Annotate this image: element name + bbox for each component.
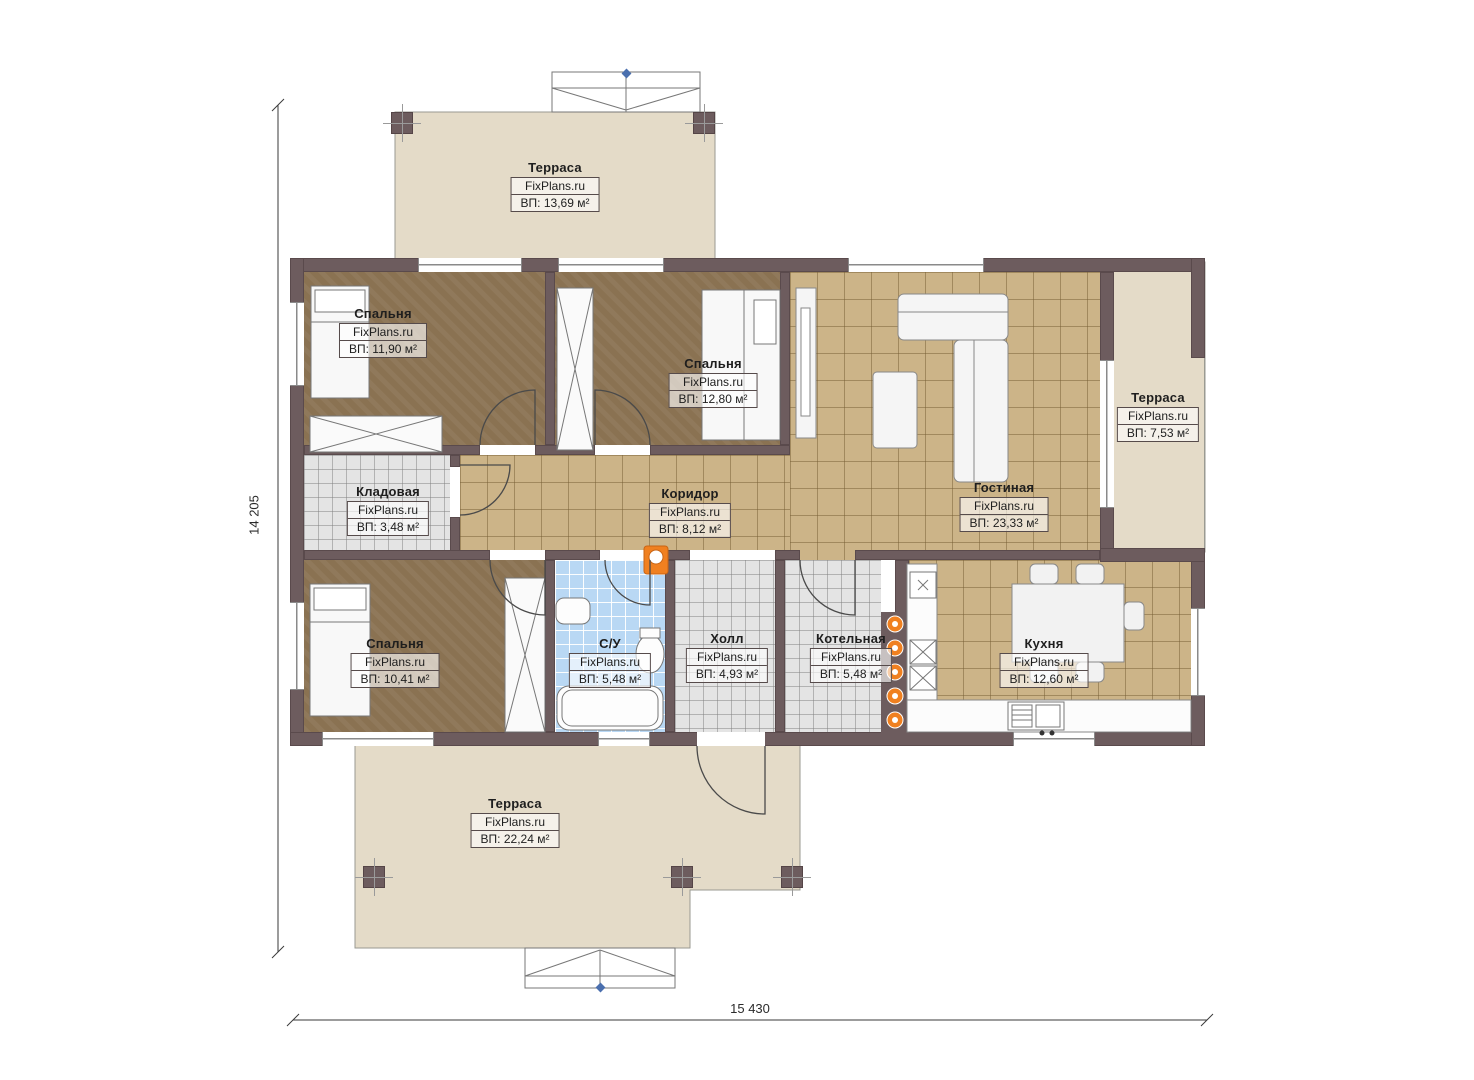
room-name: Спальня xyxy=(351,636,440,651)
brand-label: FixPlans.ru xyxy=(340,324,426,341)
room-label-bathroom: С/У FixPlans.ru ВП: 5,48 м² xyxy=(569,636,651,688)
brand-label: FixPlans.ru xyxy=(961,498,1048,515)
room-area: ВП: 10,41 м² xyxy=(352,671,439,687)
bathtub xyxy=(557,686,663,730)
stairs-bottom xyxy=(525,948,675,992)
room-area: ВП: 11,90 м² xyxy=(340,341,426,357)
kitchen-sink xyxy=(1008,702,1064,736)
room-name: Кухня xyxy=(1000,636,1089,651)
room-area: ВП: 3,48 м² xyxy=(348,519,428,535)
room-label-storage: Кладовая FixPlans.ru ВП: 3,48 м² xyxy=(347,484,429,536)
door-arc-boiler xyxy=(800,560,855,615)
room-label-boiler-room: Котельная FixPlans.ru ВП: 5,48 м² xyxy=(810,631,892,683)
room-area: ВП: 12,60 м² xyxy=(1001,671,1088,687)
room-name: Холл xyxy=(686,631,768,646)
room-name: Терраса xyxy=(511,160,600,175)
brand-label: FixPlans.ru xyxy=(352,654,439,671)
coffee-table xyxy=(873,372,917,448)
dimension-height: 14 205 xyxy=(247,495,262,535)
room-label-terrace-bottom: Терраса FixPlans.ru ВП: 22,24 м² xyxy=(471,796,560,848)
wardrobe-bedroom3 xyxy=(505,578,545,732)
wardrobe-bedroom2 xyxy=(557,288,593,450)
room-area: ВП: 12,80 м² xyxy=(670,391,757,407)
room-name: Гостиная xyxy=(960,480,1049,495)
room-area: ВП: 8,12 м² xyxy=(650,521,730,537)
room-name: С/У xyxy=(569,636,651,651)
room-label-living-room: Гостиная FixPlans.ru ВП: 23,33 м² xyxy=(960,480,1049,532)
stairs-top xyxy=(552,69,700,112)
symbols-overlay xyxy=(0,0,1474,1080)
room-label-terrace-top: Терраса FixPlans.ru ВП: 13,69 м² xyxy=(511,160,600,212)
brand-label: FixPlans.ru xyxy=(687,649,767,666)
room-name: Спальня xyxy=(339,306,427,321)
room-name: Терраса xyxy=(1117,390,1199,405)
brand-label: FixPlans.ru xyxy=(472,814,559,831)
brand-label: FixPlans.ru xyxy=(650,504,730,521)
door-arc-bathroom xyxy=(605,560,650,605)
room-label-corridor: Коридор FixPlans.ru ВП: 8,12 м² xyxy=(649,486,731,538)
door-arc-bedroom2 xyxy=(595,390,650,445)
brand-label: FixPlans.ru xyxy=(512,178,599,195)
brand-label: FixPlans.ru xyxy=(1001,654,1088,671)
door-arc-hall-terrace xyxy=(697,746,765,814)
dimension-lines xyxy=(272,99,1213,1026)
brand-label: FixPlans.ru xyxy=(670,374,757,391)
brand-label: FixPlans.ru xyxy=(570,654,650,671)
post-terrace-top-left xyxy=(391,112,413,134)
post-terrace-bottom-left xyxy=(363,866,385,888)
brand-label: FixPlans.ru xyxy=(348,502,428,519)
room-area: ВП: 4,93 м² xyxy=(687,666,767,682)
room-area: ВП: 22,24 м² xyxy=(472,831,559,847)
room-label-bedroom-1: Спальня FixPlans.ru ВП: 11,90 м² xyxy=(339,306,427,358)
brand-label: FixPlans.ru xyxy=(811,649,891,666)
door-arc-storage xyxy=(460,465,510,515)
wardrobe-bedroom1 xyxy=(310,416,442,452)
room-area: ВП: 23,33 м² xyxy=(961,515,1048,531)
tv-unit xyxy=(796,288,816,438)
room-name: Коридор xyxy=(649,486,731,501)
kitchen-corner-unit xyxy=(910,572,936,598)
room-label-kitchen: Кухня FixPlans.ru ВП: 12,60 м² xyxy=(1000,636,1089,688)
room-label-hall: Холл FixPlans.ru ВП: 4,93 м² xyxy=(686,631,768,683)
post-terrace-bottom-mid xyxy=(671,866,693,888)
door-arc-bedroom1 xyxy=(480,390,535,445)
room-name: Терраса xyxy=(471,796,560,811)
post-terrace-bottom-right xyxy=(781,866,803,888)
room-label-bedroom-3: Спальня FixPlans.ru ВП: 10,41 м² xyxy=(351,636,440,688)
floor-plan: Терраса FixPlans.ru ВП: 13,69 м² Спальня… xyxy=(0,0,1474,1080)
room-label-terrace-right: Терраса FixPlans.ru ВП: 7,53 м² xyxy=(1117,390,1199,442)
room-name: Кладовая xyxy=(347,484,429,499)
room-area: ВП: 7,53 м² xyxy=(1118,425,1198,441)
room-area: ВП: 5,48 м² xyxy=(570,671,650,687)
room-name: Котельная xyxy=(810,631,892,646)
bathroom-sink xyxy=(556,598,590,624)
brand-label: FixPlans.ru xyxy=(1118,408,1198,425)
dimension-width: 15 430 xyxy=(730,1001,770,1016)
room-area: ВП: 5,48 м² xyxy=(811,666,891,682)
post-terrace-top-right xyxy=(693,112,715,134)
room-label-bedroom-2: Спальня FixPlans.ru ВП: 12,80 м² xyxy=(669,356,758,408)
water-heater xyxy=(644,546,668,574)
room-name: Спальня xyxy=(669,356,758,371)
room-area: ВП: 13,69 м² xyxy=(512,195,599,211)
